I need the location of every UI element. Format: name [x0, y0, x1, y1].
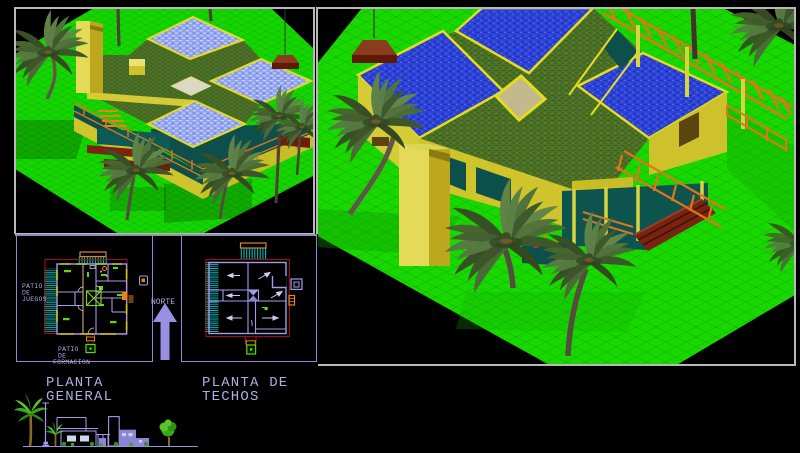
svg-text:NORTE: NORTE — [151, 298, 175, 307]
svg-text:GENERAL: GENERAL — [46, 389, 113, 405]
svg-text:JUEGOS: JUEGOS — [22, 296, 47, 303]
svg-text:FORMACION: FORMACION — [53, 359, 90, 366]
svg-text:TECHOS: TECHOS — [202, 389, 260, 405]
